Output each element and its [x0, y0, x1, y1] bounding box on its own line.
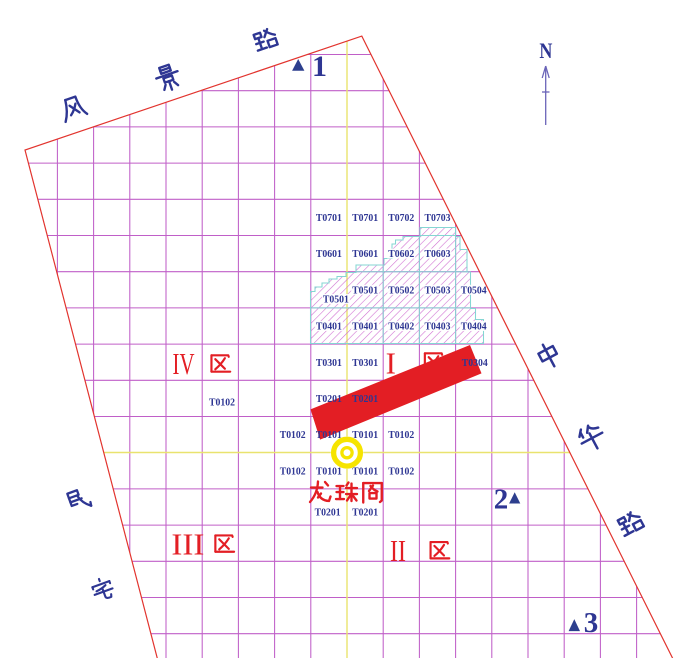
svg-text:T0703: T0703: [425, 213, 451, 224]
svg-text:T0602: T0602: [388, 249, 414, 260]
svg-text:T0503: T0503: [425, 285, 451, 296]
svg-text:3: 3: [584, 607, 599, 639]
svg-text:T0603: T0603: [425, 249, 451, 260]
svg-text:T0501: T0501: [352, 285, 378, 296]
svg-text:1: 1: [312, 50, 327, 83]
svg-text:T0201: T0201: [316, 394, 342, 405]
svg-text:T0402: T0402: [388, 322, 414, 333]
svg-text:T0304: T0304: [462, 358, 489, 369]
svg-text:T0701: T0701: [352, 213, 378, 224]
svg-text:I: I: [386, 346, 396, 381]
svg-text:T0601: T0601: [352, 249, 378, 260]
svg-text:T0501: T0501: [323, 295, 349, 306]
svg-text:T0403: T0403: [425, 322, 451, 333]
svg-text:T0404: T0404: [461, 322, 488, 333]
svg-text:T0102: T0102: [388, 430, 414, 441]
svg-text:T0101: T0101: [316, 466, 342, 477]
svg-text:II: II: [390, 533, 406, 568]
svg-text:IV: IV: [173, 346, 195, 381]
svg-text:T0101: T0101: [352, 466, 378, 477]
svg-text:T0702: T0702: [388, 213, 414, 224]
svg-text:T0701: T0701: [316, 213, 342, 224]
svg-text:T0502: T0502: [388, 285, 414, 296]
svg-text:T0201: T0201: [315, 508, 341, 519]
svg-text:2: 2: [494, 484, 509, 516]
svg-text:N: N: [539, 38, 552, 63]
svg-text:T0401: T0401: [352, 322, 378, 333]
svg-text:T0401: T0401: [316, 322, 342, 333]
svg-text:T0102: T0102: [280, 430, 306, 441]
svg-text:T0102: T0102: [209, 398, 235, 409]
svg-text:T0201: T0201: [352, 394, 378, 405]
svg-text:T0201: T0201: [352, 508, 378, 519]
svg-text:T0504: T0504: [461, 285, 488, 296]
svg-text:T0102: T0102: [280, 466, 306, 477]
svg-text:T0301: T0301: [352, 358, 378, 369]
svg-text:III: III: [171, 527, 204, 562]
svg-text:T0301: T0301: [316, 358, 342, 369]
svg-text:T0601: T0601: [316, 249, 342, 260]
svg-text:T0102: T0102: [388, 466, 414, 477]
